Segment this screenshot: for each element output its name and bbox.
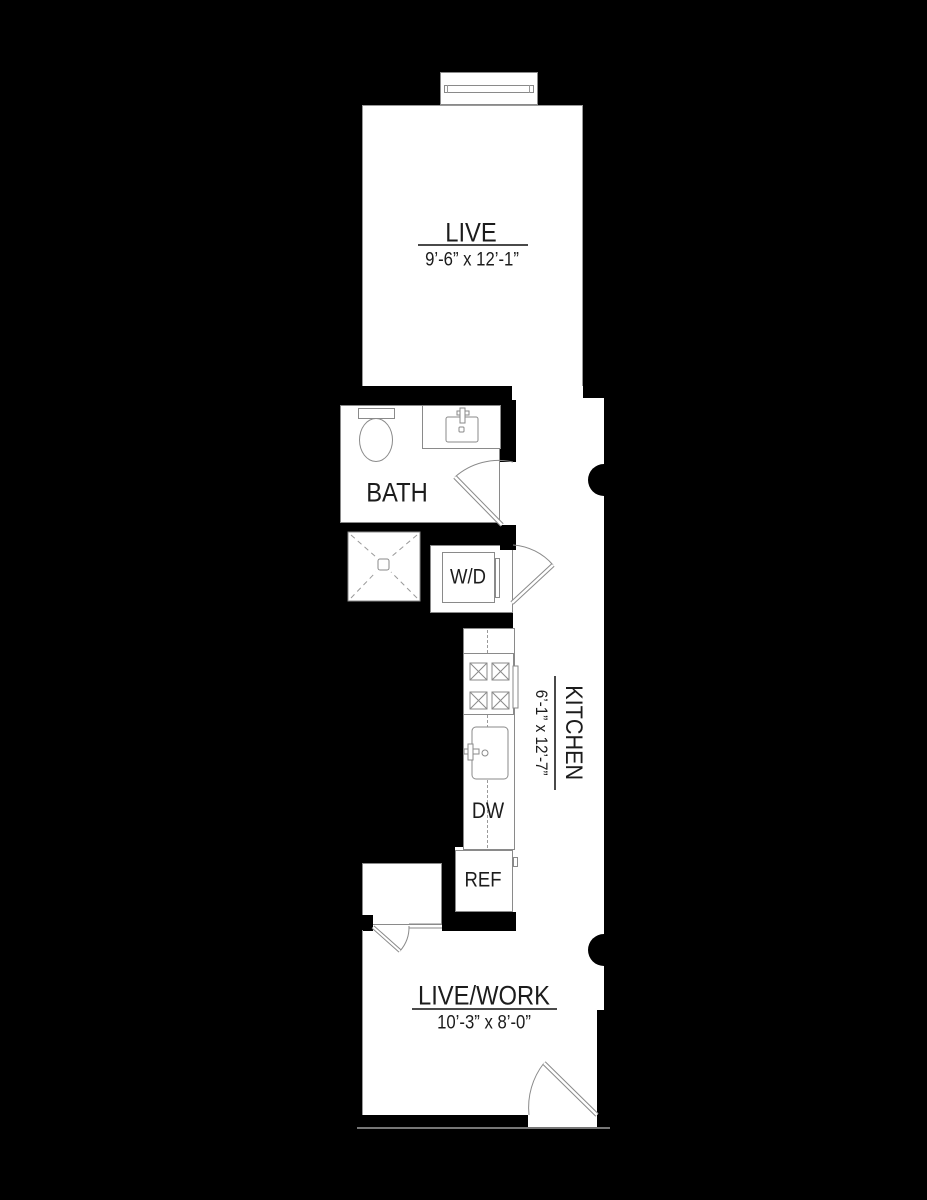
exterior-edge-line [357, 1127, 610, 1129]
window-tick-right [529, 85, 530, 93]
live-work-outline-left [362, 930, 363, 1115]
entry-vestibule-floor [362, 863, 442, 925]
window-tick-left [447, 85, 448, 93]
washer-dryer-door-bar [495, 558, 500, 598]
window-glass-band [444, 85, 534, 93]
live-work-dims: 10’-3” x 8’-0” [437, 1014, 531, 1033]
column-upper [588, 464, 620, 496]
kitchen-room-rule [554, 676, 556, 790]
laundry-door [504, 539, 560, 609]
washer-dryer-label: W/D [450, 567, 486, 588]
live-room-label: LIVE [445, 220, 497, 247]
stove-icon [462, 652, 522, 716]
entry-door [366, 918, 446, 960]
toilet-bowl-icon [359, 418, 393, 462]
live-room-outline-top [362, 105, 583, 106]
live-room-outline-left [362, 105, 363, 386]
kitchen-sink-icon [462, 725, 512, 781]
wall-left-of-ref [442, 847, 455, 917]
kitchen-room-label: KITCHEN [559, 686, 587, 781]
shower-icon [347, 531, 421, 602]
refrigerator-handle [513, 857, 518, 867]
live-work-label: LIVE/WORK [418, 983, 550, 1010]
kitchen-room-dims: 6’-1” x 12’-7” [531, 690, 551, 776]
live-room-outline-right [582, 105, 583, 386]
live-room-rule [418, 244, 528, 246]
column-lower [588, 934, 620, 966]
bath-room-label: BATH [366, 480, 428, 507]
dishwasher-label: DW [472, 800, 504, 822]
live-work-rule [412, 1008, 557, 1010]
kitchen-label-block: KITCHEN 6’-1” x 12’-7” [527, 668, 587, 798]
bath-vanity-sink-icon [422, 404, 502, 449]
bath-door [437, 453, 517, 531]
floor-plan: LIVE 9’-6” x 12’-1” BATH W/D KITCHEN 6’-… [0, 0, 927, 1200]
live-room-dims: 9’-6” x 12’-1” [425, 251, 519, 270]
refrigerator-label: REF [465, 870, 502, 891]
patio-door [520, 1056, 604, 1120]
